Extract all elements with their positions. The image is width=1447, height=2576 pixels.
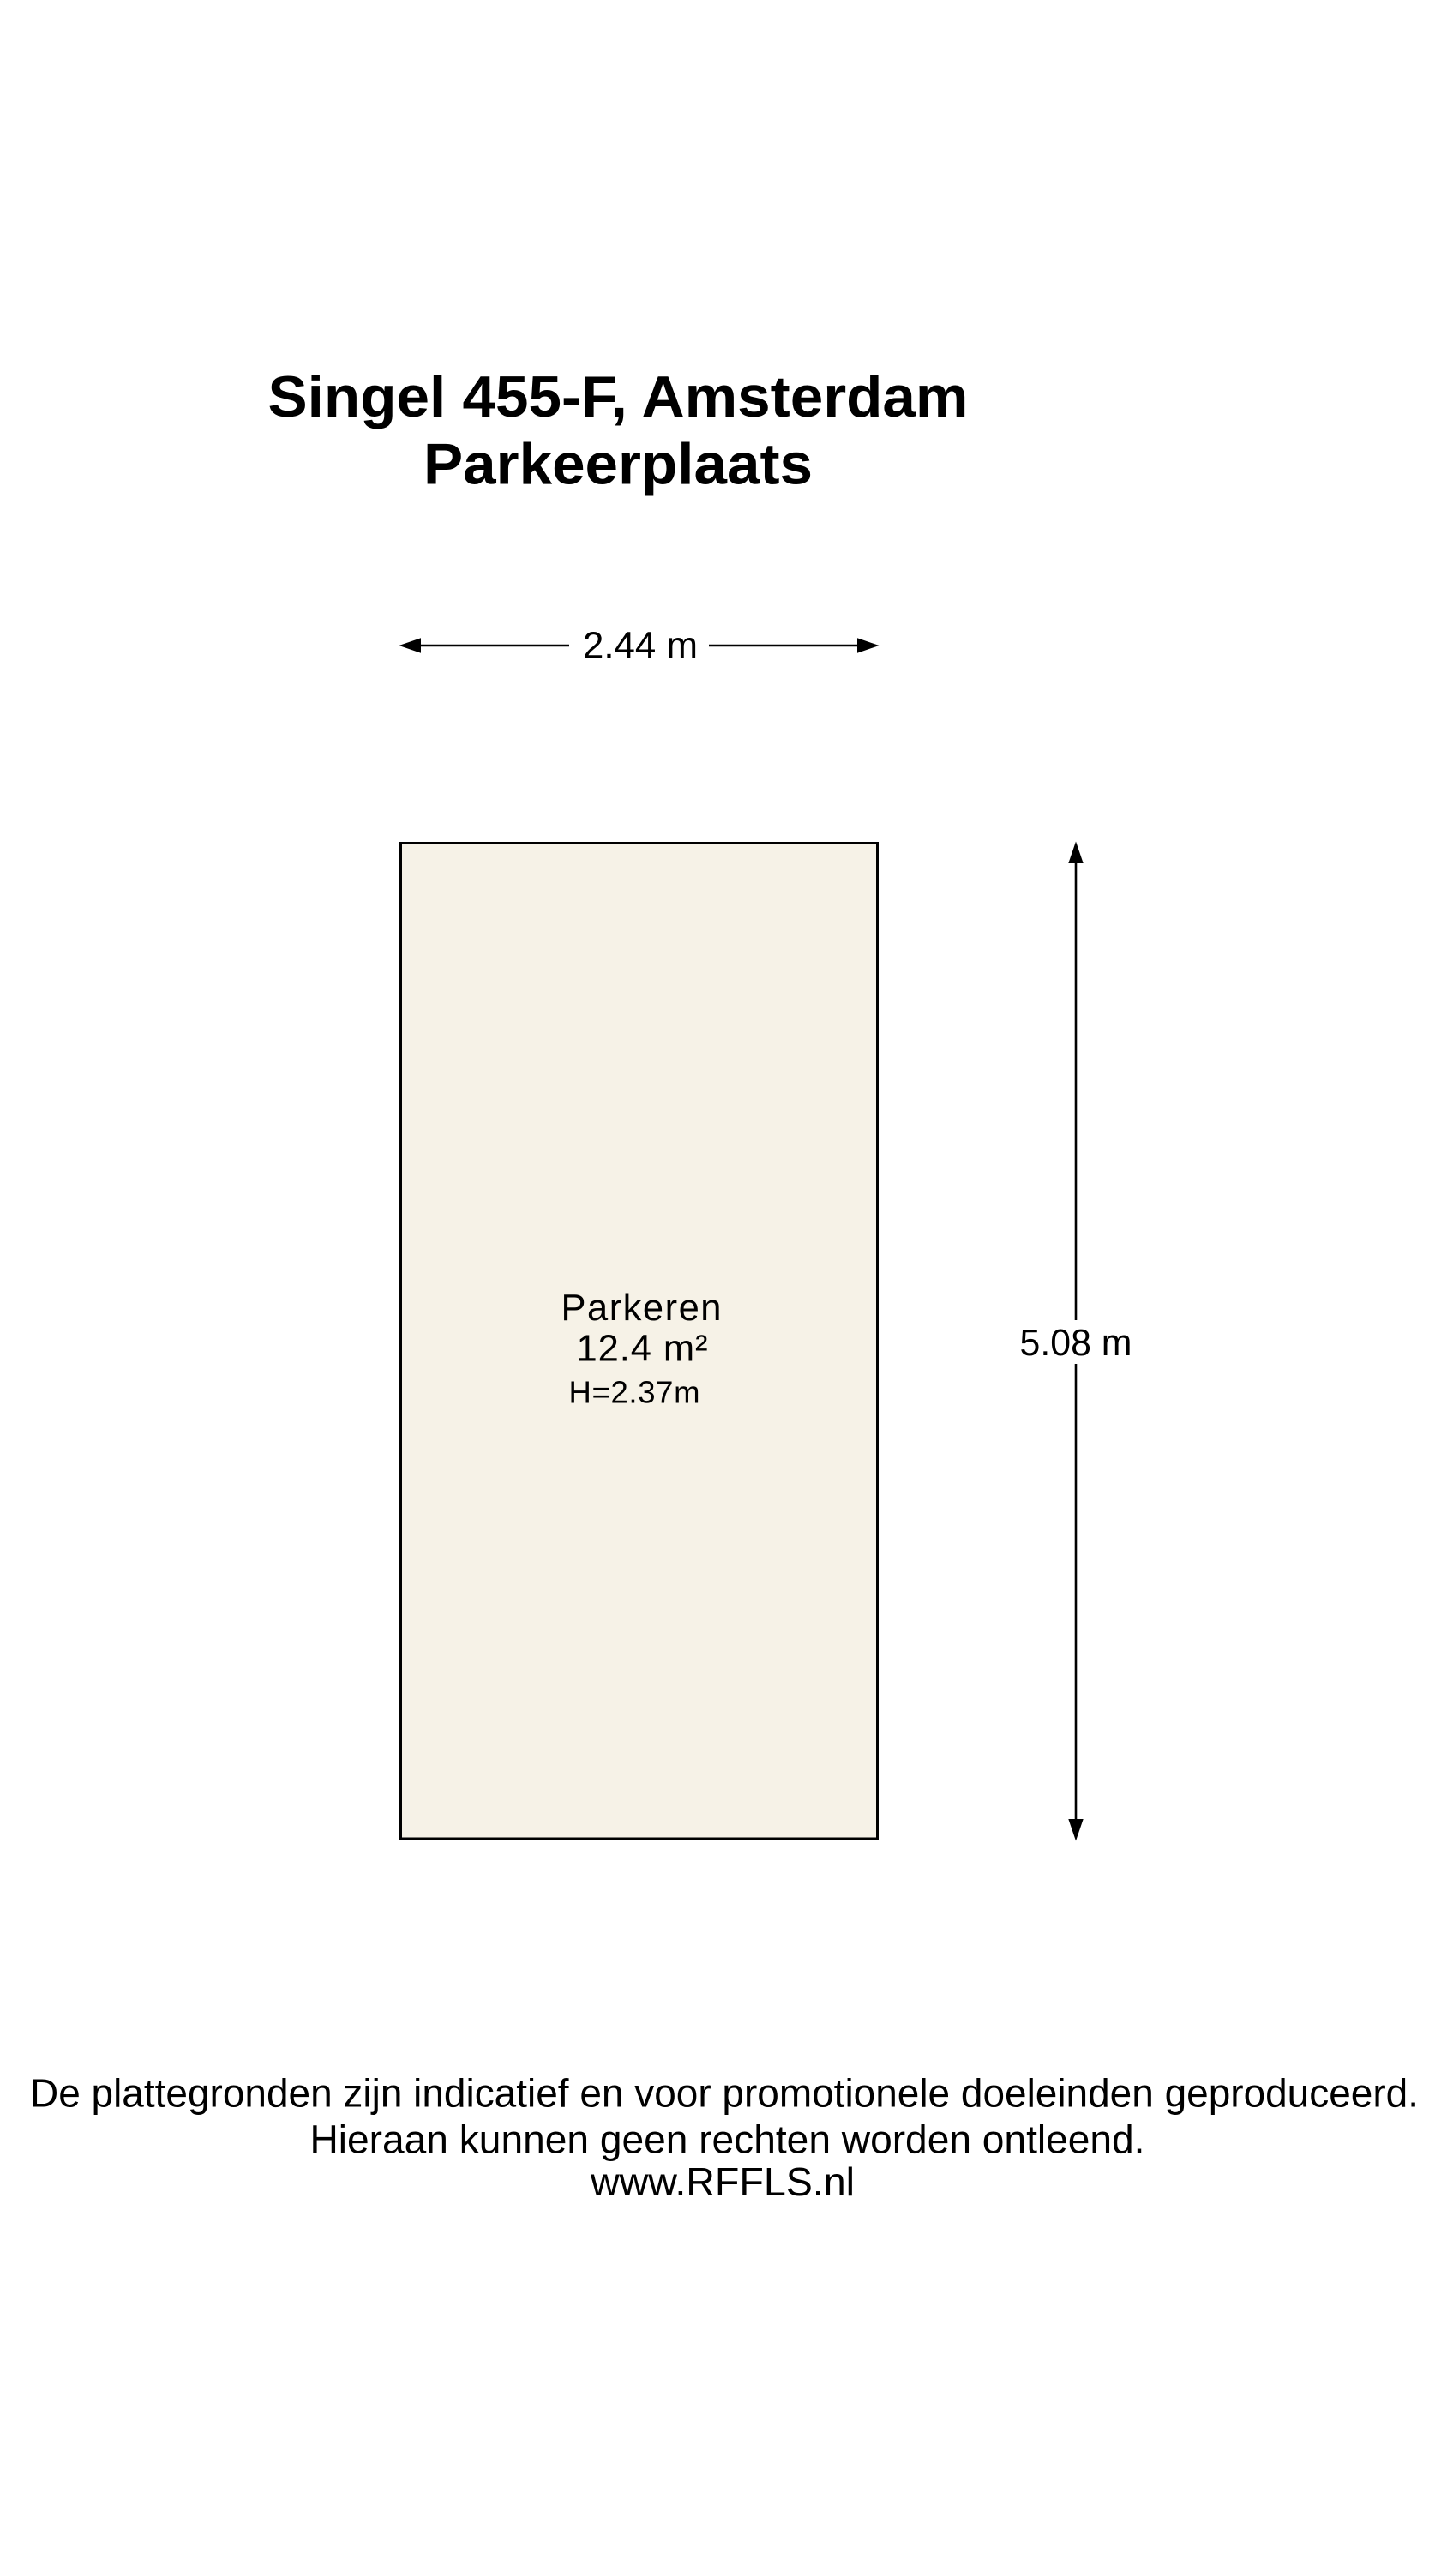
svg-text:Hieraan kunnen geen rechten wo: Hieraan kunnen geen rechten worden ontle… (310, 2117, 1145, 2162)
svg-text:Parkeerplaats: Parkeerplaats (423, 432, 813, 497)
svg-text:De plattegronden zijn indicati: De plattegronden zijn indicatief en voor… (30, 2071, 1419, 2116)
svg-text:5.08 m: 5.08 m (1020, 1322, 1132, 1364)
svg-text:12.4 m²: 12.4 m² (577, 1329, 708, 1370)
svg-text:Singel 455-F, Amsterdam: Singel 455-F, Amsterdam (268, 364, 969, 429)
svg-text:Parkeren: Parkeren (561, 1288, 722, 1329)
svg-text:H=2.37m: H=2.37m (569, 1375, 700, 1410)
svg-text:www.RFFLS.nl: www.RFFLS.nl (590, 2159, 855, 2204)
svg-text:2.44 m: 2.44 m (583, 625, 698, 667)
